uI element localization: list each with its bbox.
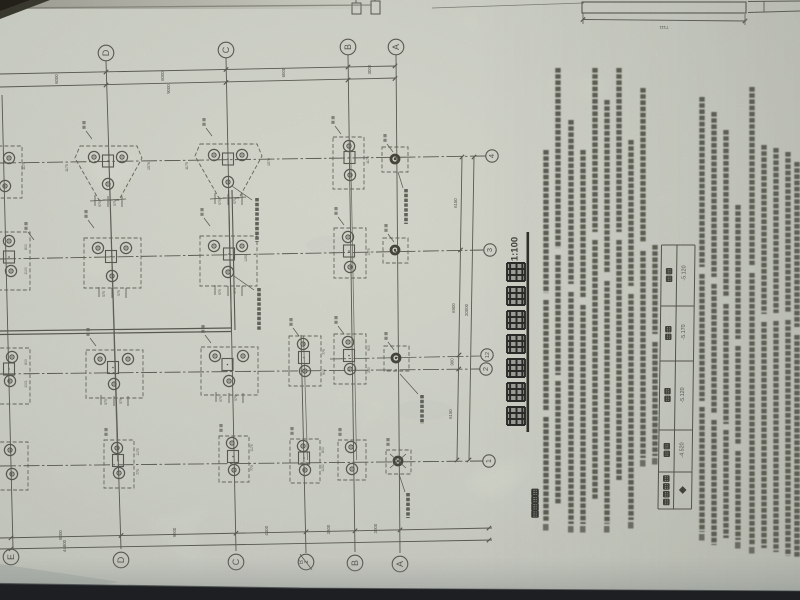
svg-text:250: 250 bbox=[367, 367, 371, 373]
svg-text:575: 575 bbox=[104, 399, 108, 405]
svg-text:6900: 6900 bbox=[451, 303, 456, 313]
svg-text:1175: 1175 bbox=[136, 448, 140, 455]
svg-text:900: 900 bbox=[322, 369, 326, 375]
svg-text:9000: 9000 bbox=[166, 84, 171, 94]
svg-text:A: A bbox=[391, 44, 401, 50]
svg-text:D: D bbox=[101, 49, 111, 56]
svg-text:6000: 6000 bbox=[281, 67, 286, 77]
svg-text:6000: 6000 bbox=[160, 71, 165, 81]
svg-text:4100: 4100 bbox=[264, 525, 269, 535]
svg-text:1576: 1576 bbox=[147, 162, 151, 170]
svg-text:775: 775 bbox=[322, 349, 326, 355]
svg-text:775: 775 bbox=[136, 469, 140, 475]
svg-text:900: 900 bbox=[450, 358, 455, 366]
svg-text:575: 575 bbox=[234, 395, 238, 401]
svg-text:1175: 1175 bbox=[366, 156, 370, 164]
svg-text:800: 800 bbox=[321, 447, 325, 453]
svg-text:B: B bbox=[343, 44, 353, 50]
svg-text:6150: 6150 bbox=[453, 198, 458, 208]
svg-text:575: 575 bbox=[117, 290, 121, 296]
svg-text:3000: 3000 bbox=[373, 523, 378, 533]
svg-text:3300: 3300 bbox=[326, 524, 331, 534]
svg-text:575: 575 bbox=[233, 288, 237, 294]
svg-text:600: 600 bbox=[24, 359, 28, 365]
svg-text:1576: 1576 bbox=[267, 158, 271, 166]
svg-text:1001: 1001 bbox=[24, 380, 28, 388]
svg-text:575: 575 bbox=[98, 201, 102, 207]
svg-text:1175: 1175 bbox=[367, 248, 371, 255]
svg-text:9000: 9000 bbox=[172, 527, 177, 537]
svg-text:1175: 1175 bbox=[22, 162, 26, 170]
svg-text:1175: 1175 bbox=[185, 162, 189, 170]
svg-text:575: 575 bbox=[119, 398, 123, 404]
svg-text:900: 900 bbox=[367, 345, 371, 351]
svg-text:575: 575 bbox=[102, 291, 106, 297]
svg-text:575: 575 bbox=[113, 200, 117, 206]
svg-text:575: 575 bbox=[219, 396, 223, 402]
svg-text:1100: 1100 bbox=[24, 267, 28, 274]
svg-text:3000: 3000 bbox=[367, 64, 372, 74]
svg-text:20000: 20000 bbox=[464, 303, 469, 316]
svg-text:1175: 1175 bbox=[250, 444, 254, 451]
svg-text:1175: 1175 bbox=[65, 164, 69, 172]
svg-text:575: 575 bbox=[218, 289, 222, 295]
svg-text:6000: 6000 bbox=[54, 74, 59, 84]
svg-text:C: C bbox=[221, 46, 231, 53]
svg-text:775: 775 bbox=[250, 465, 254, 471]
svg-text:1251: 1251 bbox=[244, 254, 248, 262]
svg-text:575: 575 bbox=[218, 199, 222, 205]
svg-text:575: 575 bbox=[233, 198, 237, 204]
svg-text:8000: 8000 bbox=[58, 530, 63, 540]
svg-text:800: 800 bbox=[24, 244, 28, 250]
svg-text:1150: 1150 bbox=[321, 464, 325, 471]
svg-text:44800: 44800 bbox=[62, 539, 67, 552]
